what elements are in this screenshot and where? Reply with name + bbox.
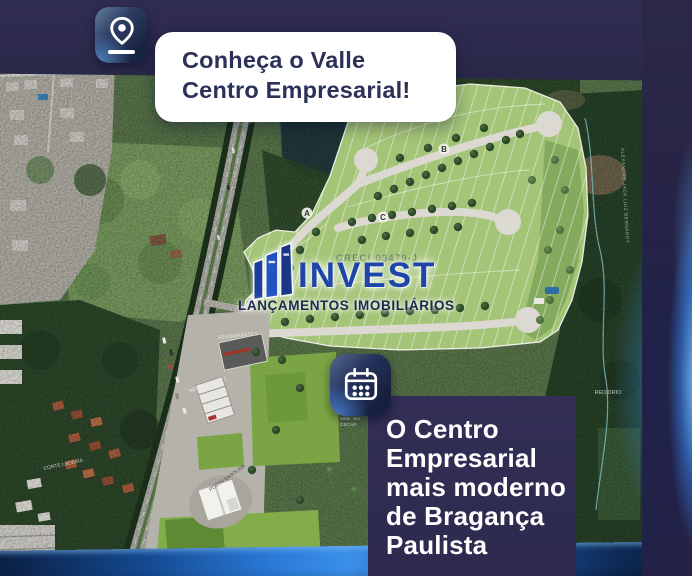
headline-line-1: O Centro — [386, 415, 576, 444]
street-badge-b: B — [439, 144, 450, 155]
brand-tagline: LANÇAMENTOS IMOBILIÁRIOS — [238, 298, 455, 313]
place-label-line1: Valle, Bm — [340, 416, 360, 422]
callout-card: Conheça o Valle Centro Empresarial! — [155, 32, 456, 122]
clubhouse — [534, 298, 544, 304]
right-navy-band — [642, 0, 692, 576]
street-badge-c: C — [378, 212, 389, 223]
headline-line-3: mais moderno — [386, 473, 576, 502]
pin-underline — [108, 50, 135, 54]
calendar-badge — [330, 354, 391, 416]
amenity-pool — [545, 287, 559, 294]
street-badge-a: A — [302, 208, 313, 219]
brand-name: INVEST — [298, 256, 436, 296]
place-label-line2: CECAP — [340, 422, 357, 428]
promo-image: A B C — [0, 0, 692, 576]
headline-line-5: Paulista — [386, 531, 576, 560]
invest-logo: CRECI 03479-J INVEST LANÇAMENTOS IMOBILI… — [236, 240, 488, 318]
location-pin-icon — [107, 16, 137, 48]
headline-line-2: Empresarial — [386, 444, 576, 473]
callout-line-1: Conheça o Valle — [182, 45, 456, 75]
street-label-b: B — [441, 145, 447, 154]
headline-panel: O Centro Empresarial mais moderno de Bra… — [368, 396, 576, 576]
headline-text: O Centro Empresarial mais moderno de Bra… — [368, 396, 576, 560]
callout-line-2: Centro Empresarial! — [182, 75, 456, 105]
street-label-c: C — [380, 213, 386, 222]
calendar-icon — [342, 366, 380, 404]
street-label-a: A — [304, 209, 310, 218]
headline-line-4: de Bragança — [386, 502, 576, 531]
buildings-logo-icon — [250, 240, 302, 304]
location-badge — [95, 7, 148, 63]
